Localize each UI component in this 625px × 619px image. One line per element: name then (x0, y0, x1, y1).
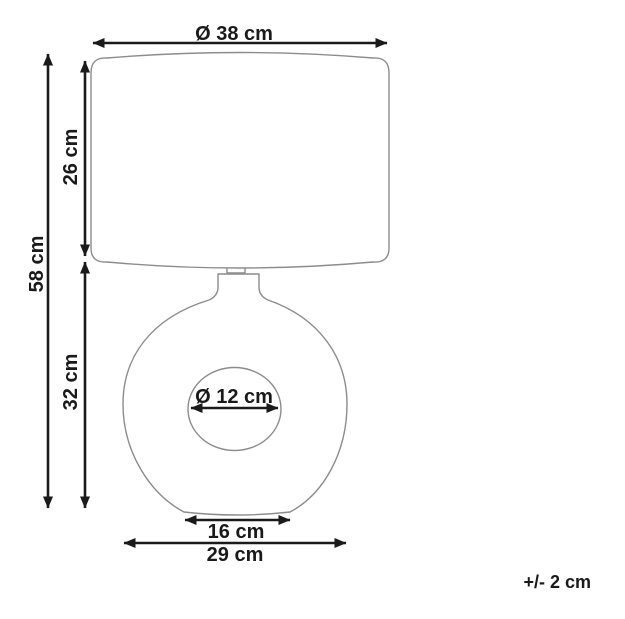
diagram-canvas: Ø 38 cm 58 cm 26 cm 32 cm Ø 12 cm 16 cm … (0, 0, 625, 619)
lamp-dimension-diagram: Ø 38 cm 58 cm 26 cm 32 cm Ø 12 cm 16 cm … (0, 0, 625, 619)
shade-diameter-label: Ø 38 cm (195, 23, 273, 45)
total-height-label: 58 cm (26, 236, 48, 293)
lamp-shade-outline (91, 53, 389, 269)
foot-width-label: 16 cm (208, 521, 265, 543)
shade-height-label: 26 cm (60, 129, 82, 186)
base-width-label: 29 cm (207, 544, 264, 566)
lamp-outline-group (91, 53, 389, 516)
hole-diameter-label: Ø 12 cm (195, 386, 273, 408)
tolerance-note: +/- 2 cm (523, 572, 591, 592)
base-height-label: 32 cm (60, 354, 82, 411)
